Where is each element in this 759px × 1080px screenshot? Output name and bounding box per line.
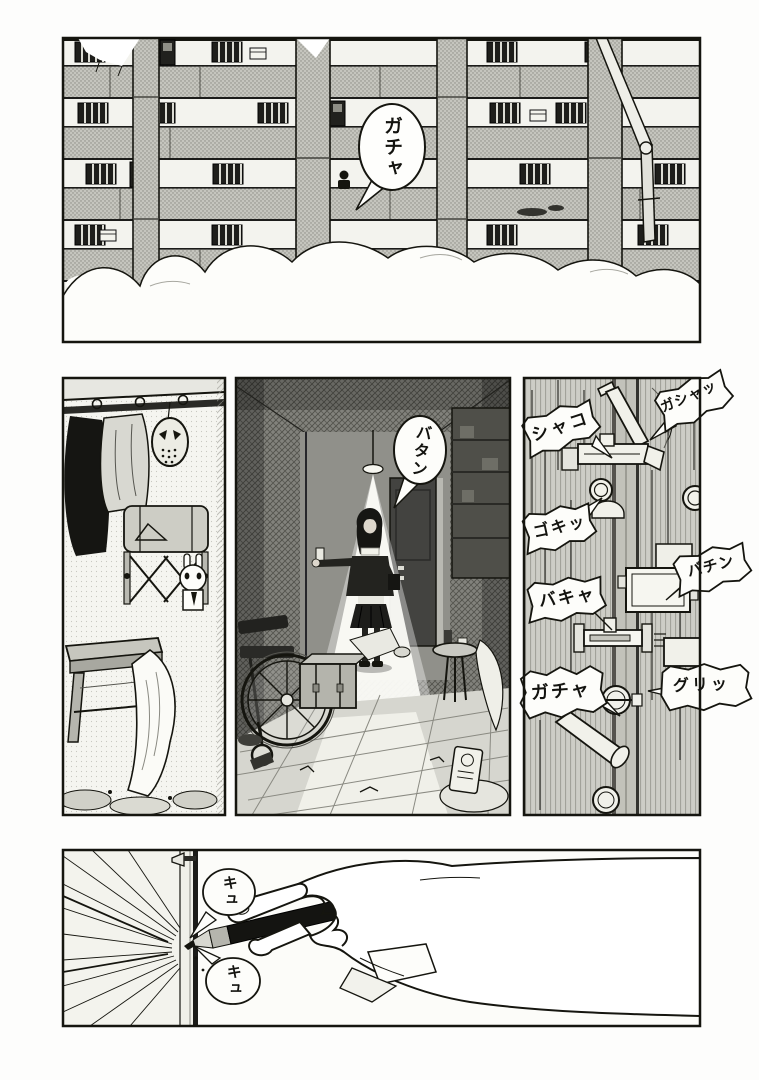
sfx-guri: グリッ [673, 676, 731, 695]
panel-cluttered-room [59, 378, 225, 815]
manga-page: ガチャ バタン シャコ ガシャッ ゴキッ バキャ バチン ガチャ グリッ キュ … [0, 0, 759, 1080]
ceiling-lamp [363, 465, 383, 474]
sfx-gacha-lock: ガチャ [530, 681, 591, 704]
sfx-gacha-door: ガチャ [381, 116, 401, 179]
manga-artwork [0, 0, 759, 1080]
shelf-unit [452, 408, 510, 578]
panel-hand-marker [63, 850, 700, 1026]
wall [63, 850, 180, 1026]
small-sign [449, 746, 483, 793]
sfx-kyu-2: キュ [225, 964, 241, 998]
light-coat [101, 414, 149, 512]
panel-dark-room [236, 378, 510, 815]
sfx-kyu-1: キュ [221, 875, 237, 909]
panel-apartment-exterior [63, 38, 700, 343]
